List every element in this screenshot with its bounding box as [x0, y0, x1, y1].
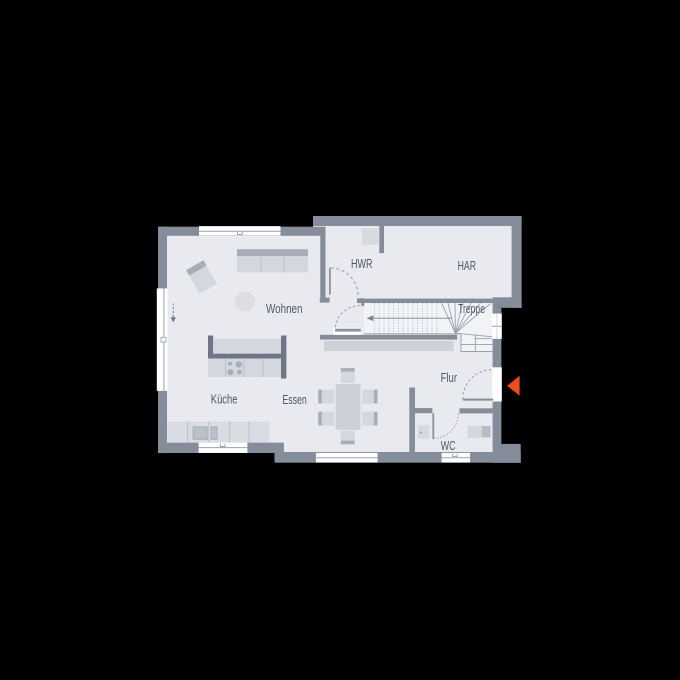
svg-text:HWR: HWR — [351, 257, 373, 271]
svg-text:HAR: HAR — [458, 259, 476, 273]
svg-text:Wohnen: Wohnen — [266, 302, 303, 316]
svg-text:Flur: Flur — [441, 371, 457, 385]
svg-text:Küche: Küche — [211, 393, 238, 407]
svg-text:Treppe: Treppe — [458, 302, 485, 316]
svg-text:WC: WC — [441, 439, 456, 453]
svg-text:Essen: Essen — [282, 393, 306, 407]
